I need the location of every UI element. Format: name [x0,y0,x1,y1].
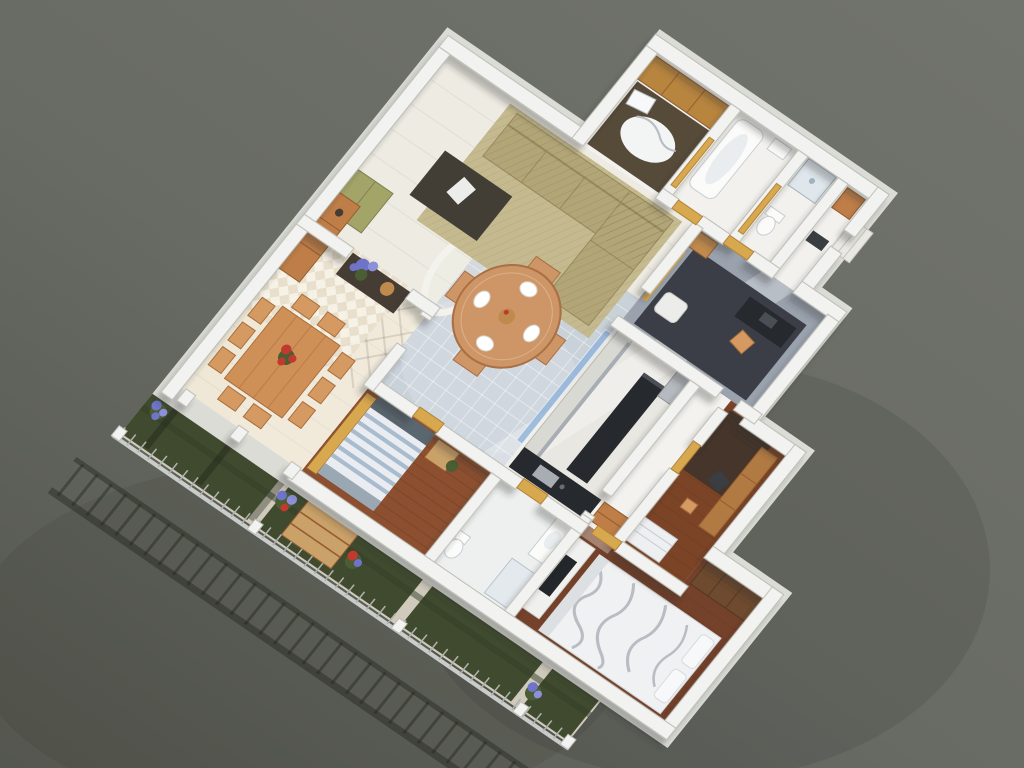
render-canvas [0,0,1024,768]
floorplan-3d-render [0,0,1024,768]
